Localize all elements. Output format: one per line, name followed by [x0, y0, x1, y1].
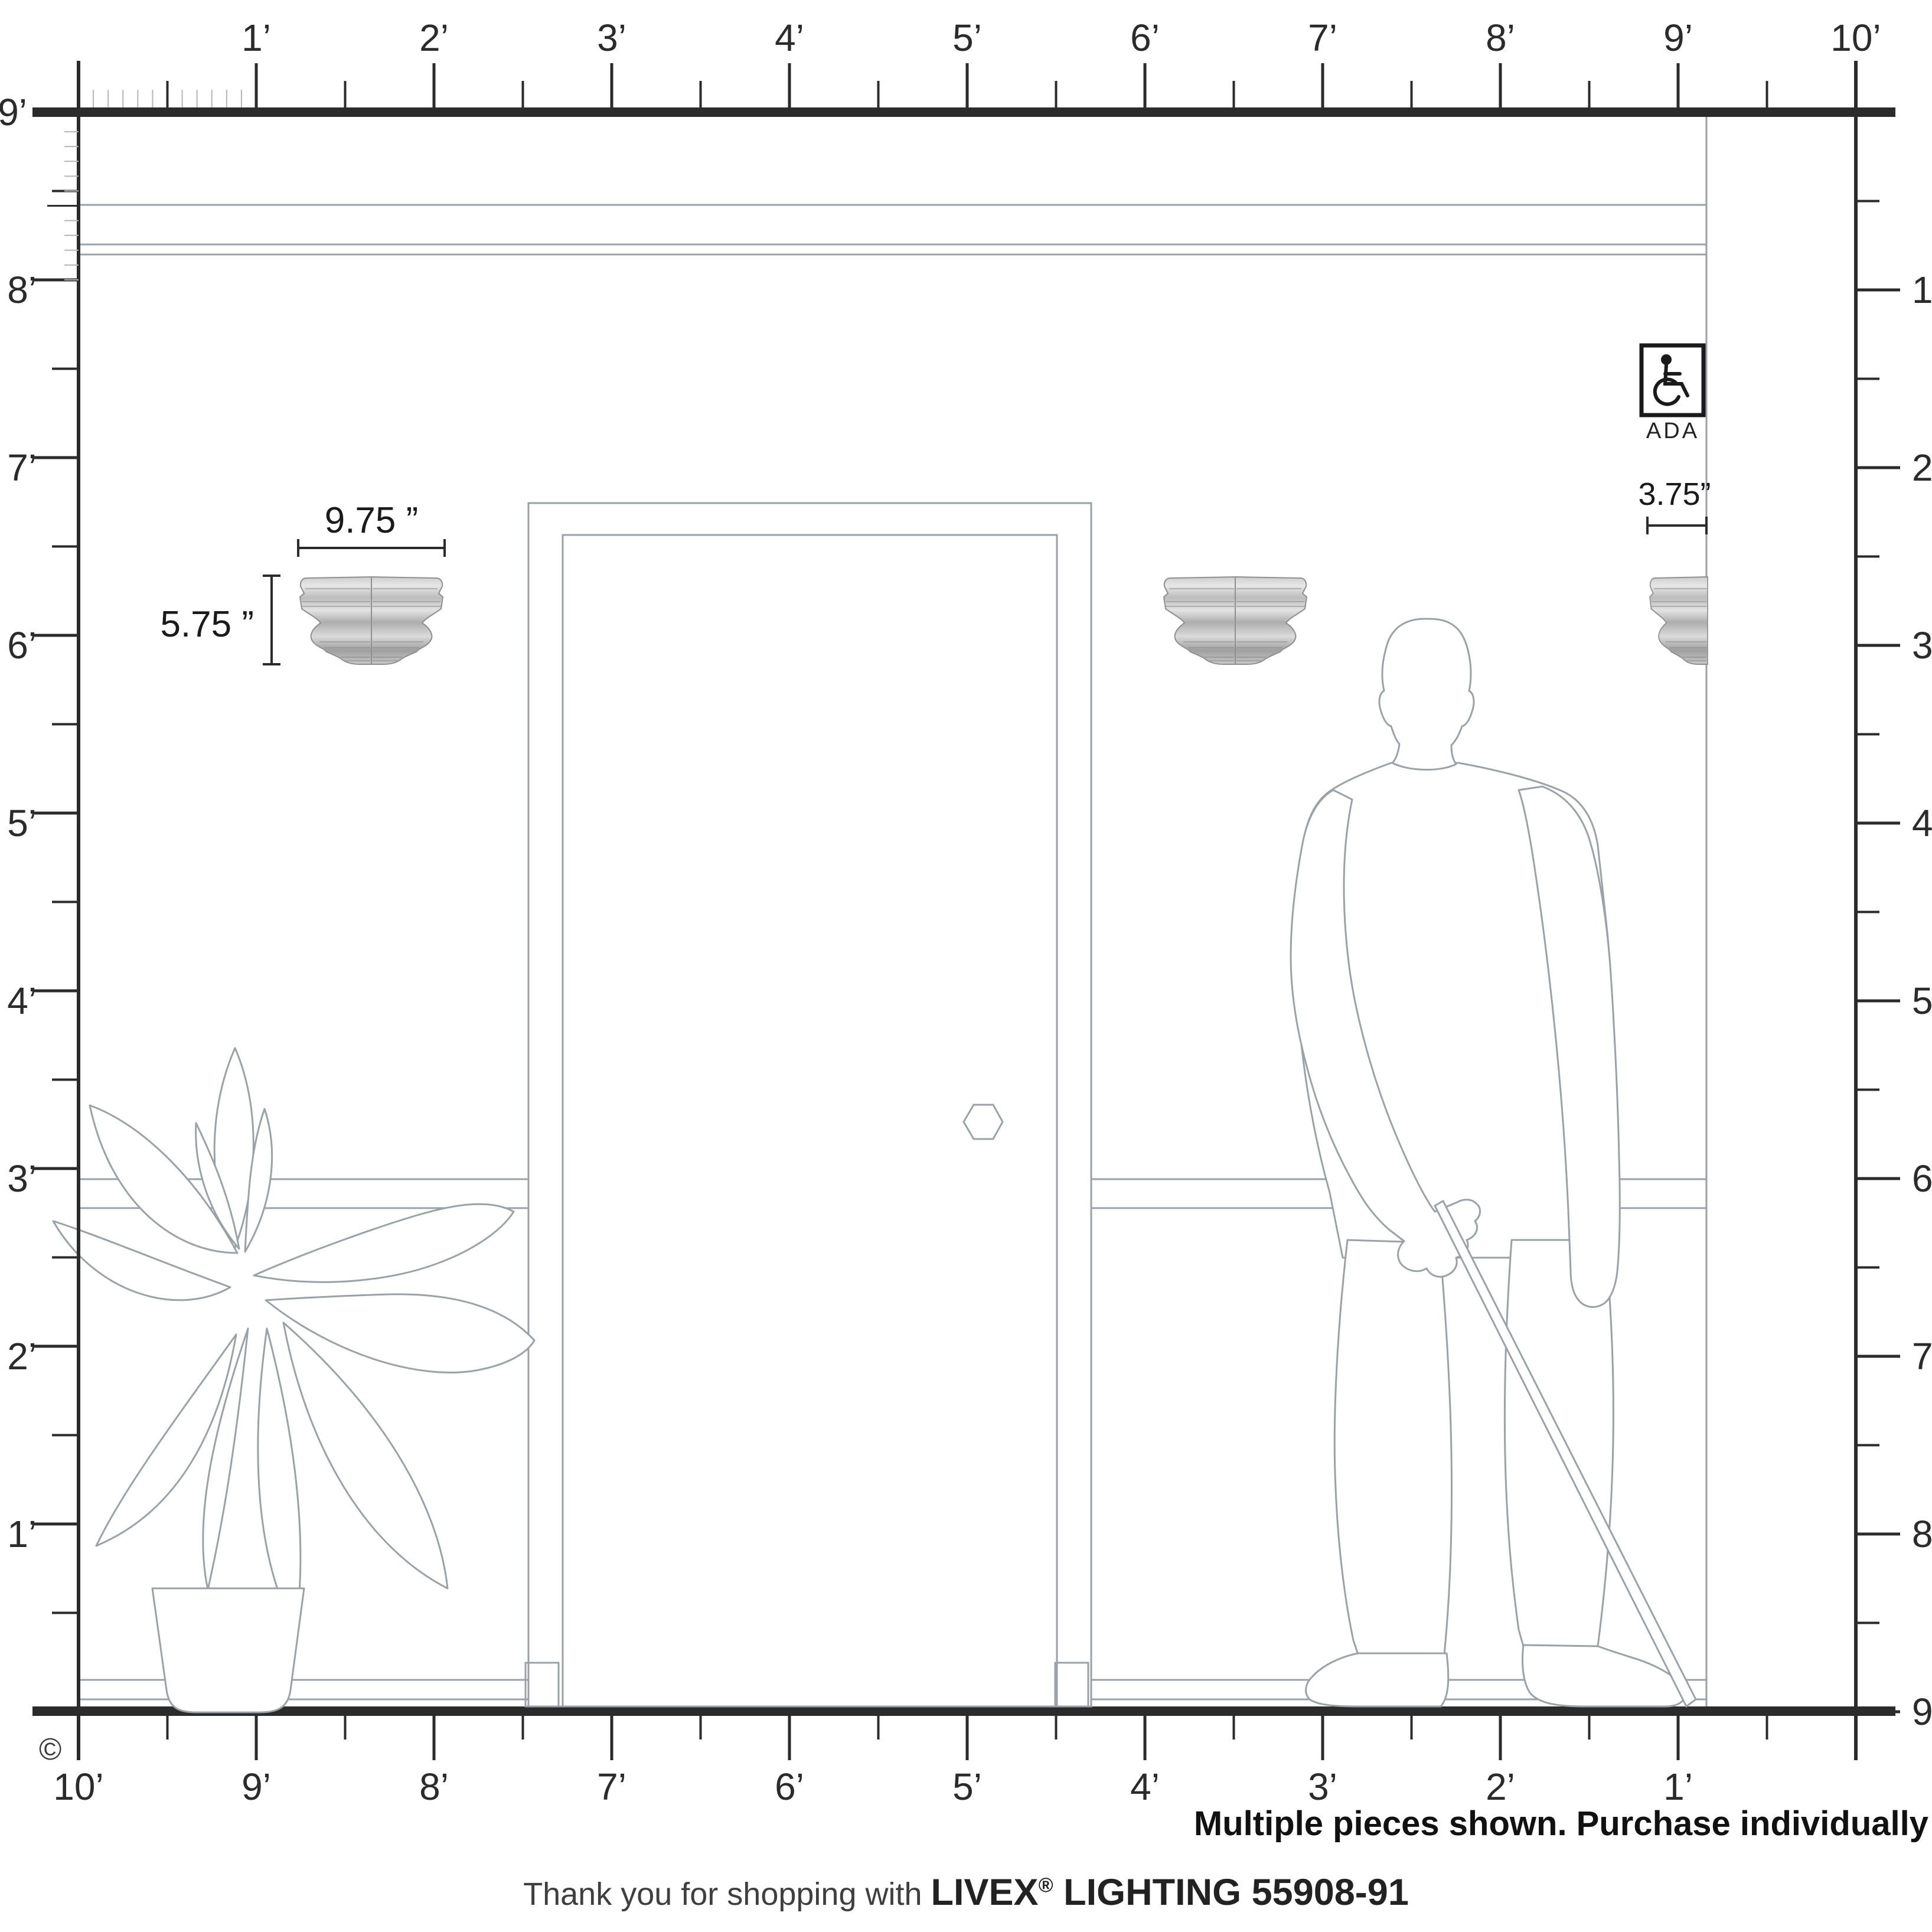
- ruler-label: 2’: [7, 1335, 37, 1378]
- ruler-label: 3’: [1308, 1765, 1337, 1808]
- dimension-width-label: 9.75 ”: [325, 500, 419, 541]
- ruler-label: 6’: [775, 1765, 804, 1808]
- registered-mark-icon: ®: [1039, 1874, 1053, 1897]
- ruler-label: 8’: [1912, 1513, 1932, 1555]
- door-frame: [528, 503, 1091, 1706]
- ruler-label: 5’: [1912, 980, 1932, 1022]
- dimension-height: [263, 576, 280, 664]
- door-plinth-left: [526, 1663, 559, 1706]
- ruler-label: 7’: [7, 446, 37, 489]
- person-left-leg: [1334, 1240, 1451, 1654]
- ruler-label: 10’: [1830, 17, 1881, 59]
- sconce-middle: [1164, 577, 1307, 664]
- ruler-label: 8’: [1486, 17, 1515, 59]
- door-knob: [964, 1105, 1003, 1139]
- footer-brand: LIVEX: [931, 1872, 1039, 1913]
- diagram-svg: 9.75 ” 5.75 ” 3.75” ADA 1’ 2’ 3’ 4’: [0, 0, 1932, 1932]
- sconce-left: [300, 577, 443, 664]
- ruler-label: 2’: [1486, 1765, 1515, 1808]
- top-ruler-ticks: [79, 63, 1856, 107]
- ruler-label: 9’: [1663, 17, 1693, 59]
- sconce-right-profile: [1650, 577, 1708, 664]
- ruler-label: 1’: [7, 1513, 37, 1555]
- ada-label: ADA: [1646, 419, 1699, 443]
- person-left-shoe: [1306, 1653, 1448, 1706]
- door: [526, 503, 1091, 1706]
- ruler-label: 4’: [775, 17, 804, 59]
- ruler-label: 7’: [1912, 1335, 1932, 1378]
- dimension-depth-label: 3.75”: [1638, 477, 1711, 512]
- ruler-label: 1’: [1912, 269, 1932, 311]
- door-slab: [563, 535, 1057, 1706]
- ruler-label: 4’: [1130, 1765, 1160, 1808]
- ruler-label: 4’: [1912, 802, 1932, 844]
- dimension-depth: [1647, 517, 1706, 534]
- ruler-label: 3’: [7, 1157, 37, 1200]
- ruler-label: 10’: [53, 1765, 103, 1808]
- ruler-label: 9’: [1912, 1690, 1932, 1733]
- ruler-label: 2’: [1912, 446, 1932, 489]
- ruler-label: 8’: [419, 1765, 449, 1808]
- potted-plant: [53, 1048, 534, 1712]
- ruler-label: 9’: [241, 1765, 271, 1808]
- dimension-height-label: 5.75 ”: [160, 604, 254, 645]
- footer-thanks: Thank you for shopping with LIVEX® LIGHT…: [523, 1872, 1409, 1913]
- floor-line: [32, 1706, 1895, 1716]
- copyright-symbol: ©: [39, 1732, 61, 1767]
- ceiling-line: [32, 107, 1895, 117]
- plant-leaves: [53, 1048, 534, 1630]
- right-ruler-ticks: [1856, 201, 1900, 1712]
- ruler-label: 8’: [7, 269, 37, 311]
- top-ruler-labels: 1’ 2’ 3’ 4’ 5’ 6’ 7’ 8’ 9’ 10’: [241, 17, 1881, 59]
- ruler-label: 5’: [7, 802, 37, 844]
- ruler-label: 3’: [1912, 624, 1932, 667]
- ruler-label: 7’: [1308, 17, 1337, 59]
- ruler-label: 9’: [0, 91, 27, 133]
- ruler-label: 1’: [1663, 1765, 1693, 1808]
- ruler-label: 4’: [7, 980, 37, 1022]
- bottom-ruler-ticks: [79, 1716, 1856, 1760]
- person-head: [1379, 619, 1474, 770]
- ruler-label: 1’: [241, 17, 271, 59]
- footer-thanks-prefix: Thank you for shopping with: [523, 1876, 931, 1912]
- product-scale-diagram: 9.75 ” 5.75 ” 3.75” ADA 1’ 2’ 3’ 4’: [0, 0, 1932, 1932]
- ruler-label: 5’: [952, 1765, 982, 1808]
- ada-sign: ADA: [1641, 345, 1703, 443]
- ruler-label: 6’: [1912, 1157, 1932, 1200]
- wall-structure: [32, 107, 1895, 1716]
- purchase-note: Multiple pieces shown. Purchase individu…: [1194, 1804, 1928, 1843]
- left-ruler-labels: 9’ 8’ 7’ 6’ 5’ 4’ 3’ 2’ 1’: [0, 91, 37, 1555]
- ruler-label: 2’: [419, 17, 449, 59]
- right-ruler-labels: 1’ 2’ 3’ 4’ 5’ 6’ 7’ 8’ 9’: [1912, 269, 1932, 1733]
- dimension-width: [298, 539, 445, 557]
- ruler-label: 7’: [597, 1765, 626, 1808]
- left-ruler-ticks: [34, 132, 79, 1613]
- person-silhouette: [1291, 619, 1696, 1706]
- plant-pot: [152, 1588, 304, 1712]
- ruler-label: 6’: [1130, 17, 1160, 59]
- ruler-label: 3’: [597, 17, 626, 59]
- door-plinth-right: [1055, 1663, 1088, 1706]
- ruler-label: 5’: [952, 17, 982, 59]
- footer-thanks-suffix: LIGHTING 55908-91: [1053, 1872, 1409, 1913]
- bottom-ruler-labels: 10’ 9’ 8’ 7’ 6’ 5’ 4’ 3’ 2’ 1’: [53, 1765, 1693, 1808]
- ruler-label: 6’: [7, 624, 37, 667]
